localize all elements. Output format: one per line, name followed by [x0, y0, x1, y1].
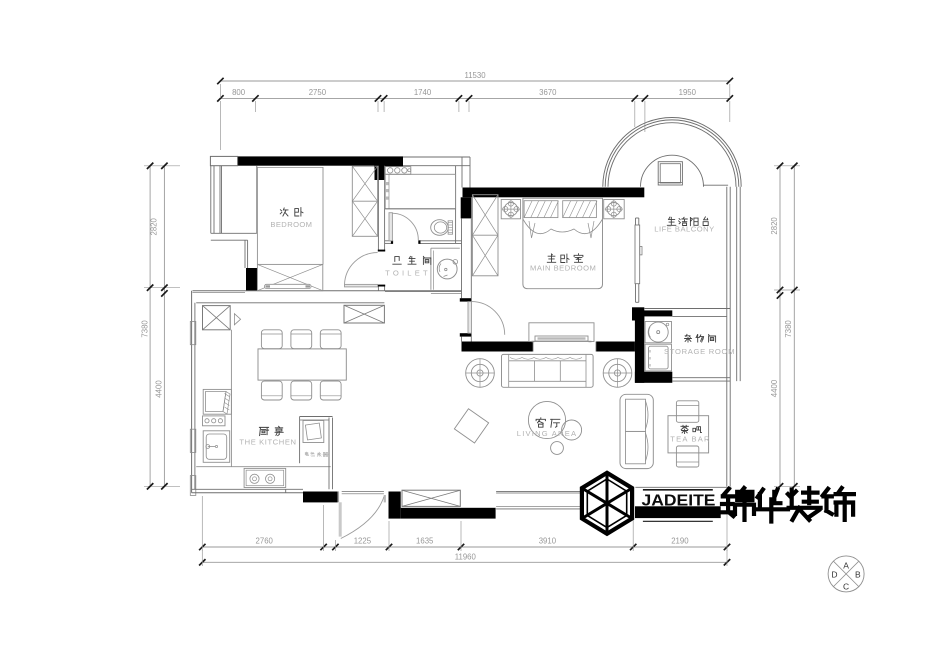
- svg-text:2190: 2190: [671, 537, 689, 546]
- svg-text:11530: 11530: [464, 71, 486, 80]
- svg-text:7380: 7380: [141, 320, 150, 338]
- svg-text:7380: 7380: [784, 320, 793, 338]
- svg-text:4400: 4400: [155, 380, 164, 398]
- svg-text:2760: 2760: [256, 537, 274, 546]
- svg-text:LIVING AREA: LIVING AREA: [517, 429, 577, 438]
- svg-text:3910: 3910: [539, 537, 557, 546]
- svg-text:1635: 1635: [416, 537, 434, 546]
- svg-text:TOILET: TOILET: [385, 268, 431, 277]
- svg-text:2820: 2820: [150, 217, 159, 235]
- svg-text:3670: 3670: [539, 88, 557, 97]
- svg-text:2750: 2750: [309, 88, 327, 97]
- svg-text:2820: 2820: [770, 217, 779, 235]
- svg-text:A: A: [843, 561, 849, 571]
- svg-text:11960: 11960: [455, 553, 477, 562]
- svg-text:D: D: [831, 570, 837, 580]
- svg-text:4400: 4400: [770, 379, 779, 397]
- svg-text:C: C: [843, 582, 849, 592]
- svg-text:1740: 1740: [414, 88, 432, 97]
- svg-text:THE KITCHEN: THE KITCHEN: [239, 438, 296, 447]
- svg-text:LIFE BALCONY: LIFE BALCONY: [654, 225, 714, 234]
- svg-text:800: 800: [232, 88, 246, 97]
- svg-text:1950: 1950: [679, 88, 697, 97]
- svg-text:BEDROOM: BEDROOM: [270, 220, 312, 229]
- svg-text:STORAGE ROOM: STORAGE ROOM: [664, 347, 735, 356]
- svg-text:TEA BAR: TEA BAR: [670, 435, 710, 444]
- svg-text:B: B: [855, 570, 861, 580]
- svg-text:MAIN BEDROOM: MAIN BEDROOM: [530, 264, 596, 273]
- svg-text:1225: 1225: [354, 537, 372, 546]
